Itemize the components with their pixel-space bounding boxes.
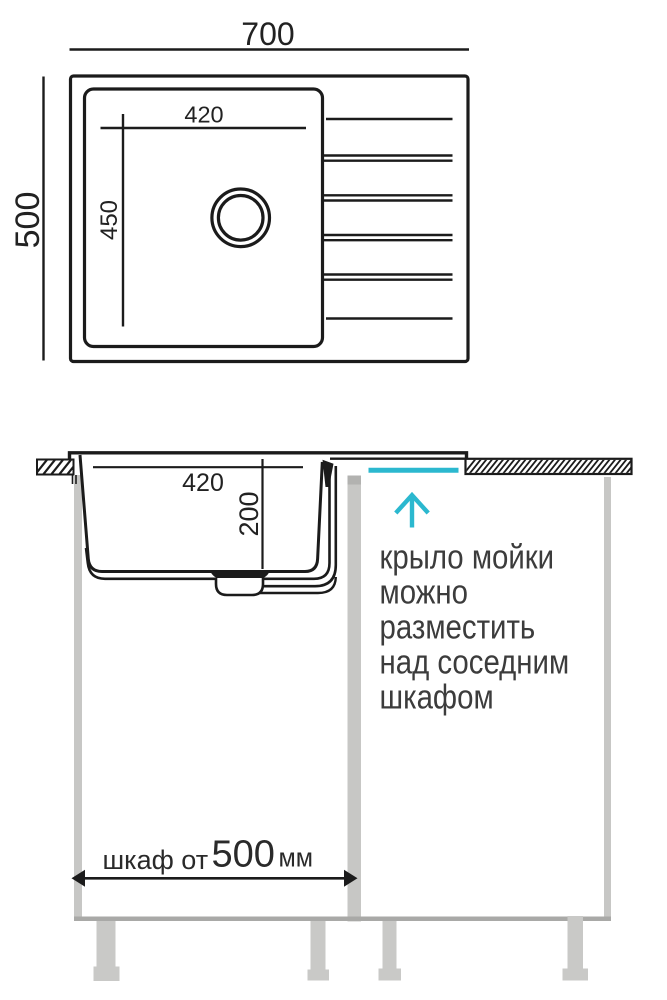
svg-text:450: 450 [96, 200, 123, 240]
svg-text:200: 200 [234, 491, 264, 536]
svg-text:шкафом: шкафом [380, 677, 494, 716]
svg-text:над соседним: над соседним [380, 642, 570, 681]
svg-text:420: 420 [184, 102, 223, 128]
svg-text:разместить: разместить [380, 607, 536, 646]
svg-text:мм: мм [279, 842, 314, 873]
svg-text:700: 700 [241, 16, 294, 52]
svg-text:шкаф от: шкаф от [103, 845, 209, 875]
svg-text:500: 500 [212, 834, 275, 876]
svg-text:крыло мойки: крыло мойки [380, 537, 555, 576]
svg-text:500: 500 [9, 192, 47, 249]
svg-text:420: 420 [182, 469, 224, 497]
svg-text:можно: можно [380, 572, 468, 611]
